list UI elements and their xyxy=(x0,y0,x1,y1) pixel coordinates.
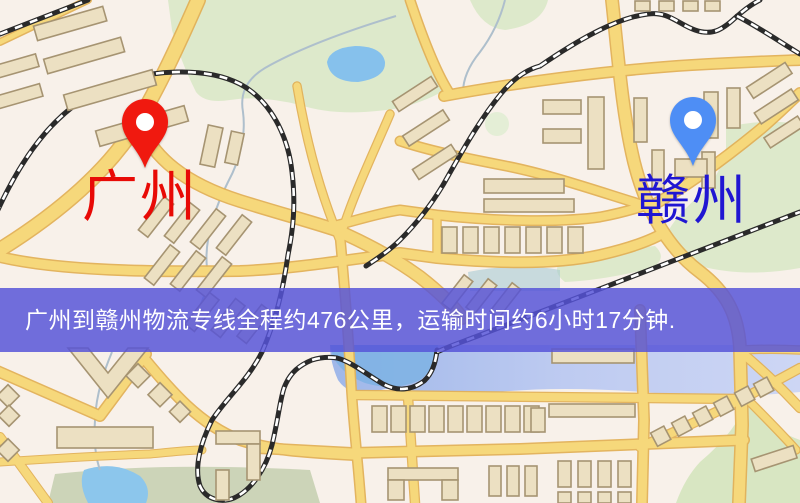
destination-marker[interactable] xyxy=(663,92,723,168)
map-artwork xyxy=(0,0,800,503)
blue-location-pin xyxy=(670,97,716,166)
origin-marker[interactable] xyxy=(115,94,175,170)
origin-city-label: 广州 xyxy=(82,170,198,226)
map-image: 广州 赣州 广州到赣州物流专线全程约476公里，运输时间约6小时17分钟. xyxy=(0,0,800,503)
destination-city-label: 赣州 xyxy=(636,174,748,228)
route-info-text: 广州到赣州物流专线全程约476公里，运输时间约6小时17分钟. xyxy=(25,307,676,333)
red-location-pin xyxy=(122,99,168,168)
route-info-banner: 广州到赣州物流专线全程约476公里，运输时间约6小时17分钟. xyxy=(0,288,800,352)
pin-center-dot xyxy=(684,111,702,129)
pin-center-dot xyxy=(136,113,154,131)
